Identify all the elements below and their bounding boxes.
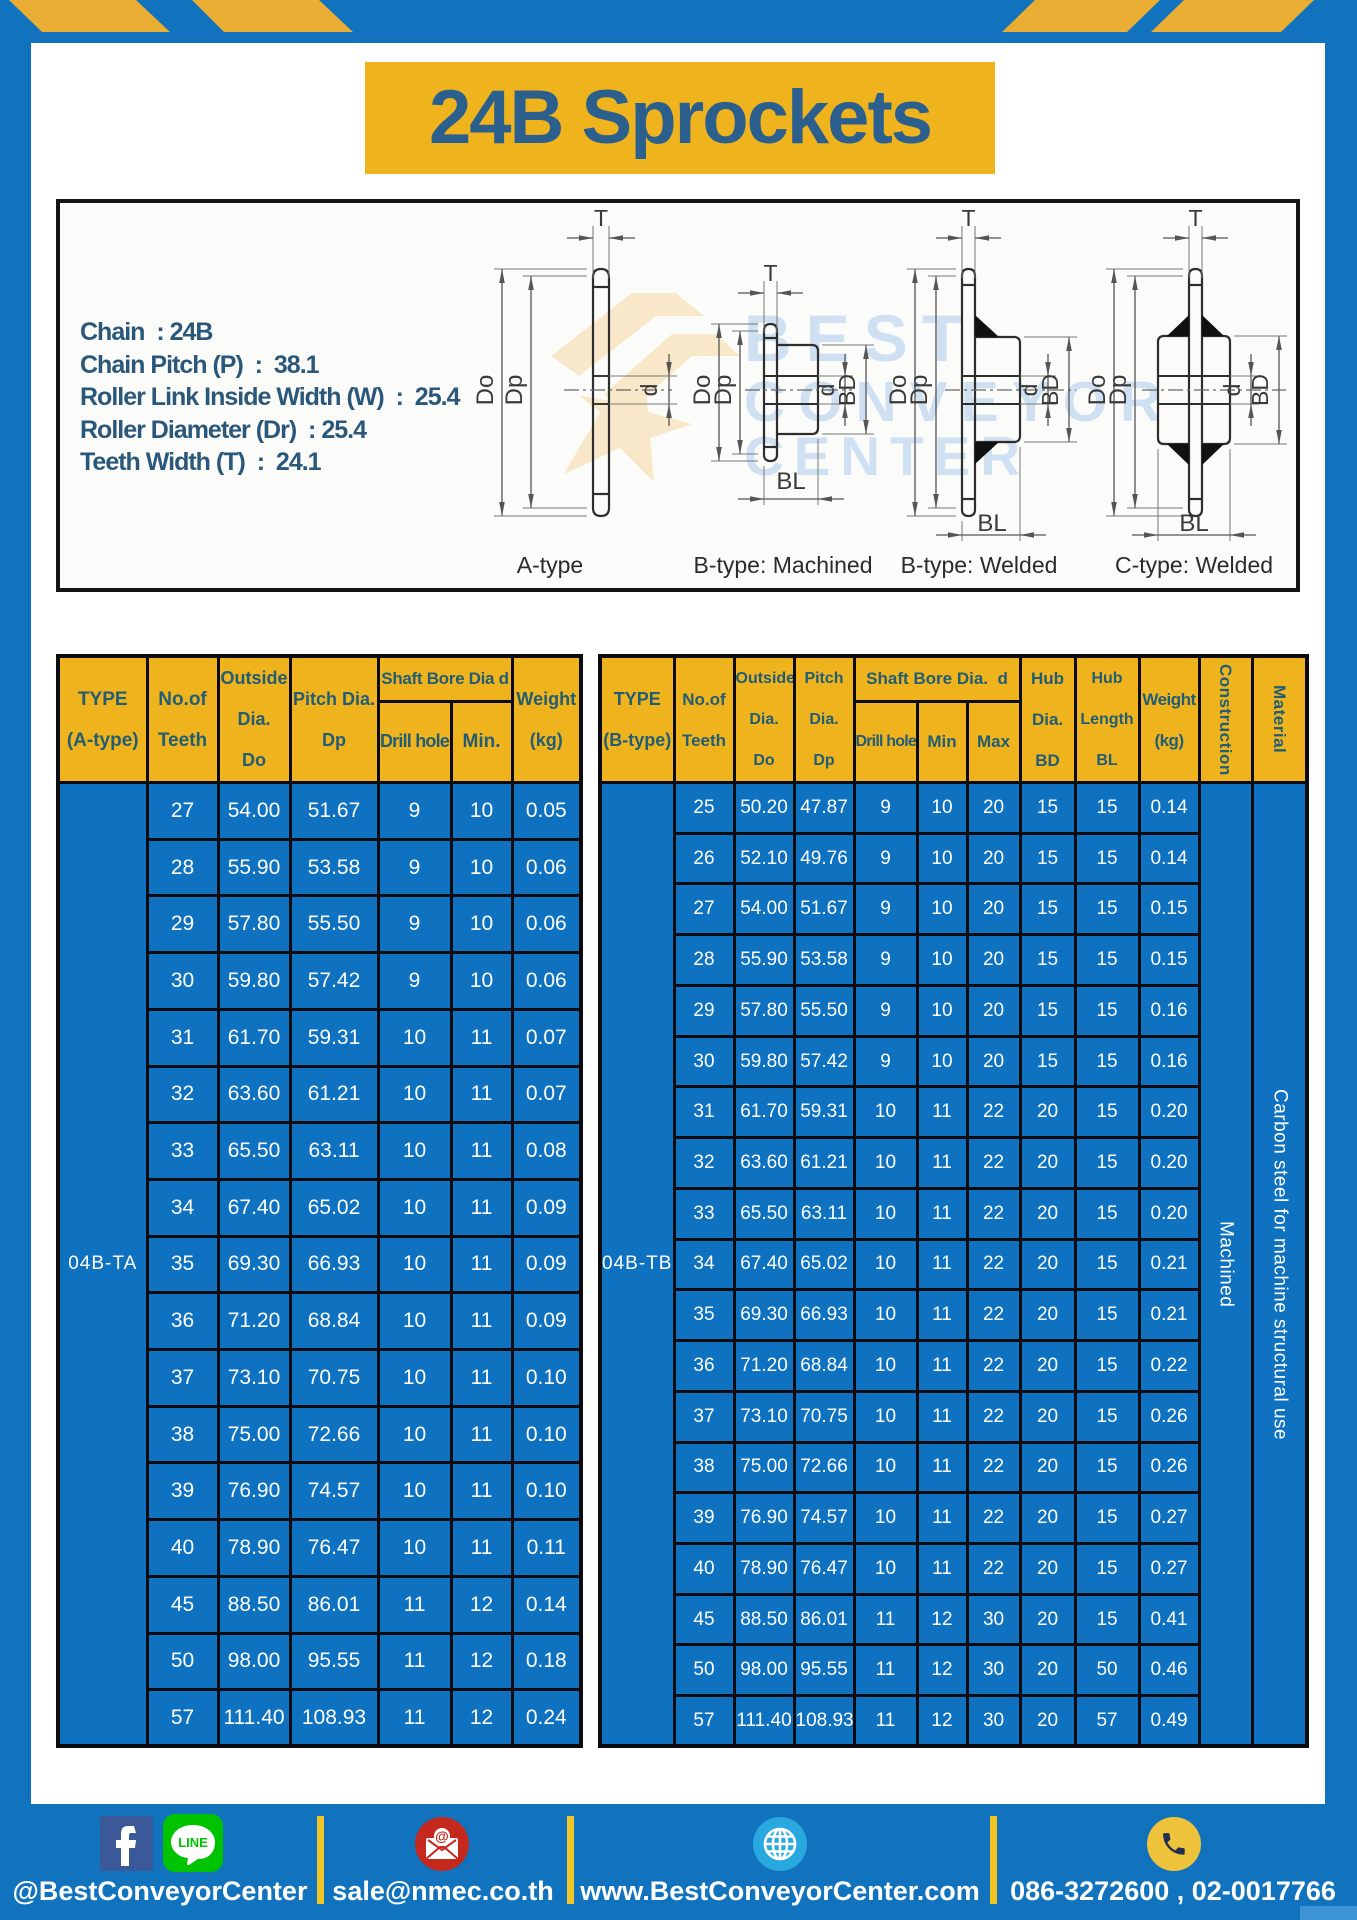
svg-text:A-type: A-type: [517, 552, 583, 578]
svg-text:T: T: [1188, 205, 1202, 231]
svg-text:BL: BL: [977, 510, 1006, 537]
svg-text:d: d: [1219, 384, 1245, 397]
svg-text:BD: BD: [1037, 374, 1063, 406]
svg-text:Dp: Dp: [1105, 375, 1132, 406]
svg-text:LINE: LINE: [178, 1835, 208, 1850]
svg-text:BD: BD: [834, 374, 860, 406]
svg-text:BD: BD: [1247, 374, 1273, 406]
svg-text:Do: Do: [472, 375, 499, 406]
svg-text:T: T: [763, 260, 777, 286]
svg-text:Dp: Dp: [710, 375, 737, 406]
svg-text:BL: BL: [1179, 510, 1208, 537]
svg-text:T: T: [594, 205, 608, 231]
svg-text:@: @: [435, 1828, 449, 1844]
svg-text:Dp: Dp: [501, 375, 528, 406]
svg-text:C-type: Welded: C-type: Welded: [1115, 552, 1273, 578]
svg-text:T: T: [961, 205, 975, 231]
svg-text:B-type: Machined: B-type: Machined: [694, 552, 873, 578]
svg-text:d: d: [636, 384, 662, 397]
svg-text:B-type: Welded: B-type: Welded: [901, 552, 1058, 578]
svg-text:Dp: Dp: [906, 375, 933, 406]
svg-text:BL: BL: [776, 468, 805, 495]
